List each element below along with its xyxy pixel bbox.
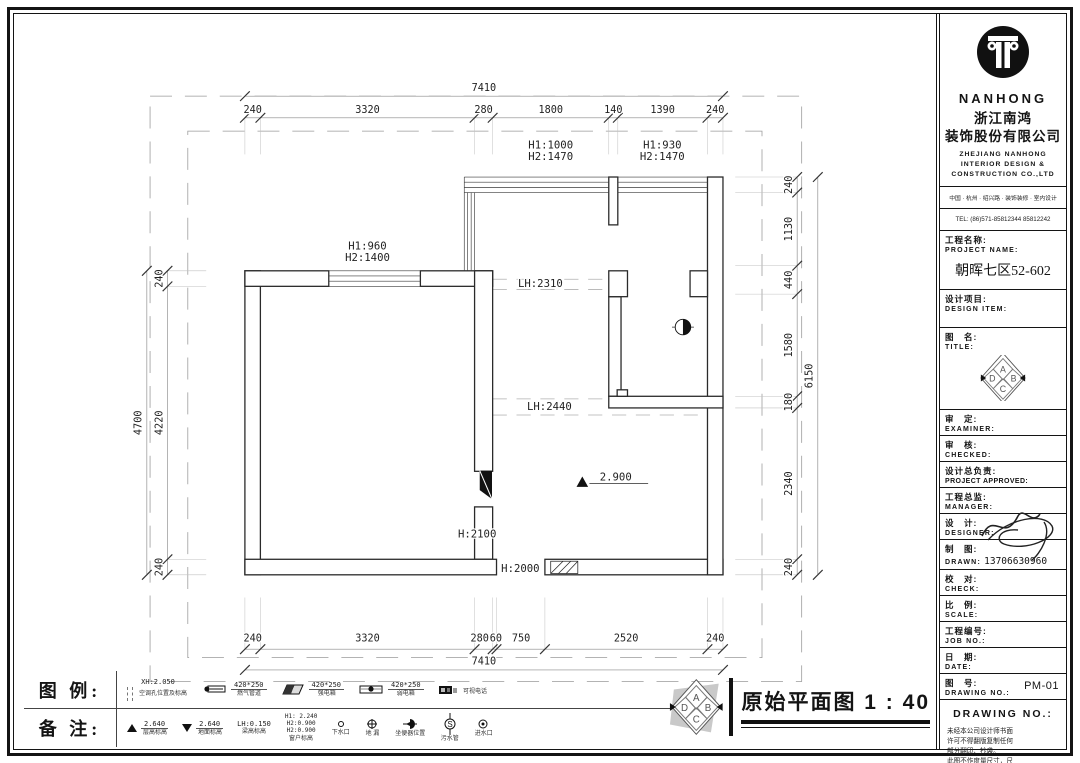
note-label: 进水口: [474, 731, 492, 738]
titleblock-row-project-name: 工程名称: PROJECT NAME: 朝晖七区52-602: [940, 231, 1066, 290]
abcd-diamond-logo: A B C D: [668, 675, 725, 739]
brand-name: NANHONG: [944, 91, 1062, 106]
note-label: 坐便器位置: [395, 731, 425, 738]
svg-text:LH:2440: LH:2440: [527, 400, 572, 413]
legend-title: 图 例:: [24, 671, 116, 709]
titleblock-row-designer: 设 计: DESIGNER:: [940, 514, 1066, 540]
note-item-drain-outlet: 下水口: [331, 719, 351, 736]
drawing-title: 原始平面图 1 : 40: [741, 686, 930, 716]
legend-label: 弱电箱: [397, 691, 415, 698]
titleblock-row-checked: 审 核: CHECKED:: [940, 436, 1066, 462]
note-item-floor-elev: 2.640 地面标高: [182, 720, 223, 737]
floor-drain-icon: [366, 718, 378, 730]
legend-value: XH:2.050: [141, 678, 175, 686]
svg-text:440: 440: [784, 271, 795, 289]
svg-text:4220: 4220: [154, 411, 165, 436]
note-value: H2:0.900: [287, 728, 316, 735]
disclaimer-line: 部分翻印、抄袭。: [947, 747, 1059, 757]
note-item-storey-elev: 2.640 层高标高: [127, 720, 168, 737]
titleblock-row-drawn: 制 图: DRAWN: 13706630960: [940, 540, 1066, 570]
company-tel: TEL: (86)571-85812344 85812242: [940, 209, 1066, 231]
svg-text:60: 60: [490, 633, 502, 644]
svg-text:2520: 2520: [614, 633, 639, 644]
svg-text:240: 240: [243, 633, 261, 644]
drain-outlet-icon: [336, 719, 346, 729]
note-item-beam-elev: LH:0.150 梁高标高: [237, 720, 271, 736]
drawing-area: 7410240332028018001401390240240332028060…: [14, 14, 937, 749]
svg-text:C: C: [693, 715, 700, 726]
titleblock-row-check: 校 对: CHECK:: [940, 570, 1066, 596]
svg-text:D: D: [989, 373, 995, 383]
svg-text:280: 280: [471, 633, 489, 644]
svg-text:C: C: [1000, 384, 1007, 394]
svg-text:H2:1470: H2:1470: [640, 150, 685, 163]
toilet-position-icon: [402, 718, 418, 730]
disclaimer-line: 未经本公司设计师书面: [947, 727, 1059, 737]
disclaimer-line: 此图不作度量尺寸，尺: [947, 757, 1059, 763]
drawing-no-value: PM-01: [1024, 680, 1059, 692]
weak-power-box-icon: [358, 683, 384, 695]
svg-text:S: S: [447, 720, 452, 729]
title-underline-thin: [741, 727, 930, 728]
company-address: 中国 · 杭州 · 绍兴路 · 装饰装修 · 室内设计: [940, 187, 1066, 209]
company-name-cn: 浙江南鸿 装饰股份有限公司: [944, 110, 1062, 145]
note-item-floor-drain: 地 漏: [365, 718, 380, 737]
note-label: 地面标高: [198, 729, 222, 736]
strong-power-box-icon: [281, 683, 305, 696]
svg-text:H1:960: H1:960: [348, 239, 386, 252]
note-item-toilet-position: 坐便器位置: [394, 718, 427, 737]
titleblock-row-project-approved: 设计总负责: PROJECT APPROVED:: [940, 462, 1066, 488]
drawing-title-block: A B C D 原始平面图 1 : 40: [668, 671, 930, 743]
svg-text:H:2000: H:2000: [501, 562, 539, 575]
legend-item-strong-power-box: 420*250 强电箱: [281, 681, 345, 698]
svg-text:B: B: [1011, 373, 1017, 383]
title-underline: [741, 720, 930, 724]
svg-text:3320: 3320: [355, 105, 380, 116]
sheet-outer-border: 7410240332028018001401390240240332028060…: [7, 7, 1073, 756]
titleblock-row-manager: 工程总监: MANAGER:: [940, 488, 1066, 514]
disclaimer-line: 许可不得翻版复制任何: [947, 737, 1059, 747]
svg-text:6150: 6150: [805, 364, 816, 389]
legend-value: 420*250: [231, 681, 267, 690]
svg-text:240: 240: [706, 105, 724, 116]
note-label: 层高标高: [143, 729, 167, 736]
svg-text:240: 240: [784, 558, 795, 576]
footer-header: DRAWING NO.:: [947, 708, 1059, 720]
notes-title: 备 注:: [24, 709, 116, 747]
legend-strip: 图 例: XH:2.050 空调孔位置及标高: [24, 671, 692, 747]
titleblock-row-title: 图 名: TITLE: A B C D: [940, 328, 1066, 410]
triangle-up-icon: [127, 724, 137, 732]
notes-items: 2.640 层高标高 2.640 地面标高 LH:0.150 梁高标高: [116, 709, 692, 747]
note-label: 梁高标高: [242, 729, 266, 736]
svg-text:2.900: 2.900: [600, 470, 632, 483]
column-logo-icon: [975, 24, 1031, 80]
svg-text:1580: 1580: [784, 333, 795, 358]
svg-text:A: A: [1000, 364, 1006, 374]
svg-text:H:2100: H:2100: [458, 527, 496, 540]
note-item-sewage-pipe: S 污水管: [440, 713, 460, 742]
titleblock-row-scale: 比 例: SCALE:: [940, 596, 1066, 622]
svg-text:280: 280: [474, 105, 492, 116]
drawing-sheet: 7410240332028018001401390240240332028060…: [0, 0, 1080, 763]
svg-text:2340: 2340: [784, 471, 795, 496]
legend-item-ac-hole: XH:2.050 空调孔位置及标高: [127, 678, 189, 700]
svg-text:A: A: [693, 693, 700, 704]
title-block: NANHONG 浙江南鸿 装饰股份有限公司 ZHEJIANG NANHONG I…: [939, 14, 1066, 749]
svg-text:180: 180: [784, 393, 795, 411]
legend-value: 420*250: [309, 681, 345, 690]
svg-text:240: 240: [243, 105, 261, 116]
legend-label: 强电箱: [317, 691, 335, 698]
svg-text:H1:930: H1:930: [643, 139, 681, 152]
legend-item-videophone: 可视电话: [438, 684, 488, 696]
brand-block: NANHONG 浙江南鸿 装饰股份有限公司 ZHEJIANG NANHONG I…: [940, 14, 1066, 187]
legend-value: 420*250: [388, 681, 424, 690]
dashed-hole-icon: [127, 687, 133, 701]
svg-text:240: 240: [154, 558, 165, 576]
floor-plan-svg: 7410240332028018001401390240240332028060…: [132, 80, 832, 688]
note-item-window-elev: H1: 2.240 H2:0.900 H2:0.900 窗户标高: [285, 714, 318, 742]
svg-text:4700: 4700: [134, 411, 145, 436]
svg-text:240: 240: [784, 176, 795, 194]
note-value: 2.640: [196, 720, 223, 729]
note-label: 污水管: [441, 736, 459, 743]
legend-item-gas-duct: 420*250 燃气管道: [203, 681, 267, 698]
svg-text:140: 140: [604, 105, 622, 116]
svg-text:1800: 1800: [538, 105, 563, 116]
note-value: LH:0.150: [237, 720, 271, 728]
svg-text:3320: 3320: [355, 633, 380, 644]
drawn-phone-value: 13706630960: [984, 556, 1047, 567]
svg-text:240: 240: [706, 633, 724, 644]
water-inlet-icon: [477, 718, 489, 730]
note-label: 下水口: [332, 730, 350, 737]
triangle-down-icon: [182, 724, 192, 732]
svg-text:7410: 7410: [472, 83, 497, 94]
svg-text:D: D: [681, 703, 688, 714]
note-label: 地 漏: [365, 731, 379, 738]
svg-text:H2:1400: H2:1400: [345, 251, 390, 264]
note-value: 2.640: [141, 720, 168, 729]
svg-text:750: 750: [512, 633, 530, 644]
svg-text:1130: 1130: [784, 217, 795, 242]
titleblock-row-drawing-no: 图 号: DRAWING NO.: PM-01: [940, 674, 1066, 700]
project-name-value: 朝晖七区52-602: [945, 254, 1061, 287]
svg-text:1390: 1390: [650, 105, 675, 116]
title-divider-bar: [729, 678, 734, 736]
svg-text:7410: 7410: [472, 657, 497, 668]
legend-items: XH:2.050 空调孔位置及标高: [116, 671, 692, 709]
company-name-en: ZHEJIANG NANHONG INTERIOR DESIGN & CONST…: [944, 150, 1062, 180]
svg-text:H1:1000: H1:1000: [528, 139, 573, 152]
legend-label: 燃气管道: [237, 691, 261, 698]
sheet-inner-border: 7410240332028018001401390240240332028060…: [13, 13, 1067, 750]
sewage-pipe-icon: S: [443, 713, 457, 735]
titleblock-row-examiner: 审 定: EXAMINER:: [940, 410, 1066, 436]
titleblock-row-job-no: 工程编号: JOB NO.:: [940, 622, 1066, 648]
legend-label: 空调孔位置及标高: [139, 690, 187, 697]
abcd-diamond-logo-small: A B C D: [980, 355, 1026, 401]
svg-text:240: 240: [154, 269, 165, 287]
svg-text:H2:1470: H2:1470: [528, 150, 573, 163]
titleblock-footer: DRAWING NO.: 未经本公司设计师书面 许可不得翻版复制任何 部分翻印、…: [940, 700, 1066, 763]
legend-label: 可视电话: [463, 685, 487, 694]
titleblock-row-design-item: 设计项目: DESIGN ITEM:: [940, 290, 1066, 328]
titleblock-row-date: 日 期: DATE:: [940, 648, 1066, 674]
note-item-water-inlet: 进水口: [474, 718, 494, 737]
legend-item-weak-power-box: 420*250 弱电箱: [358, 681, 424, 698]
gas-duct-icon: [203, 683, 227, 695]
note-label: 窗户标高: [289, 735, 313, 742]
svg-text:B: B: [705, 703, 712, 714]
videophone-icon: [438, 684, 458, 696]
svg-text:LH:2310: LH:2310: [518, 277, 563, 290]
